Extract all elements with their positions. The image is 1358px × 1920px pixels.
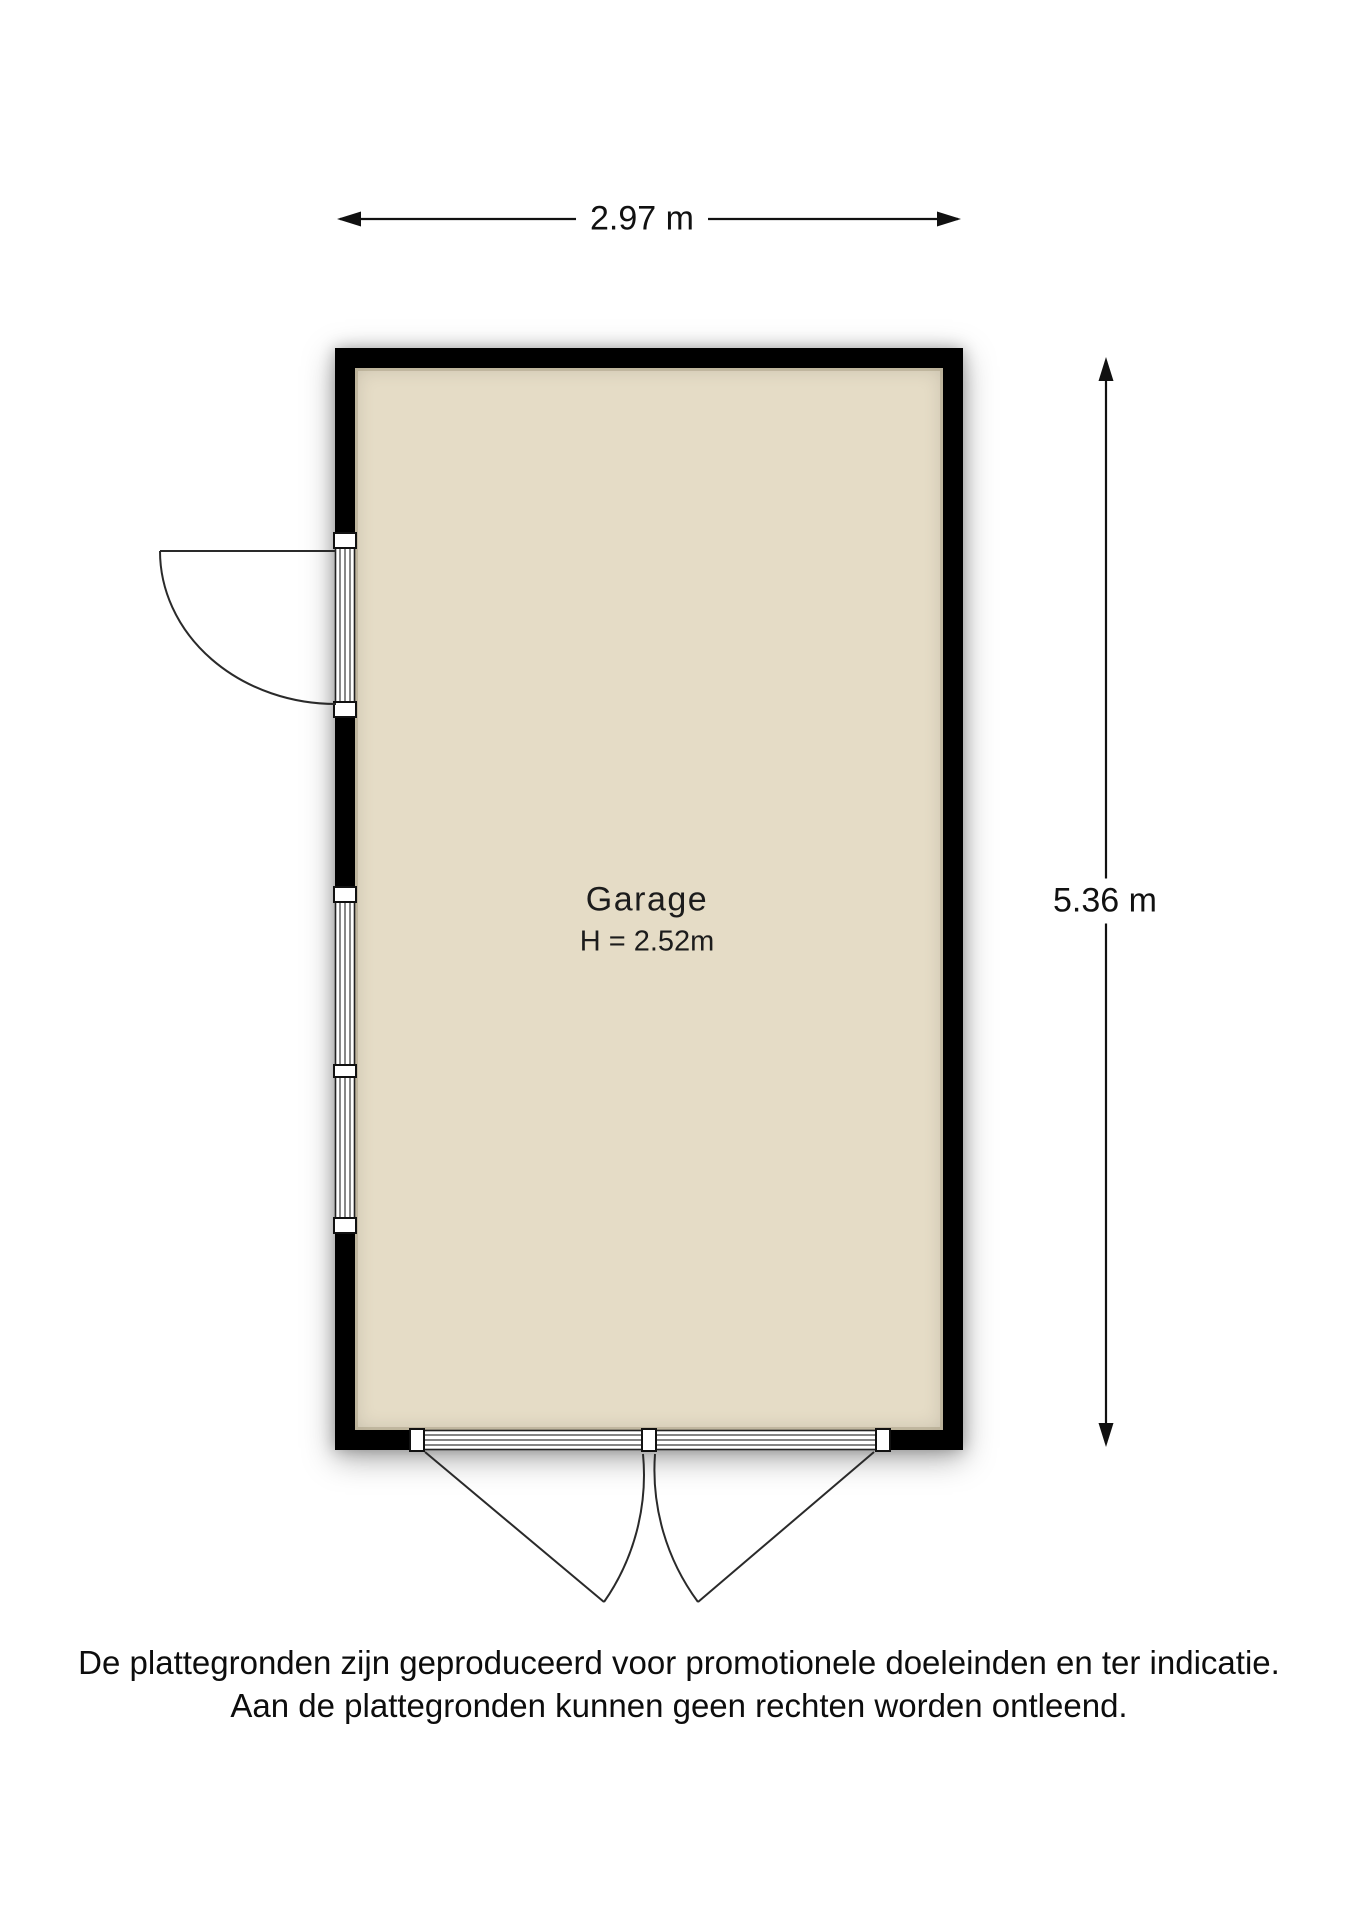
garage-door-swing-arc-left (604, 1454, 644, 1602)
disclaimer-text: De plattegronden zijn geproduceerd voor … (0, 1641, 1358, 1727)
garage-door-leaf-left (425, 1452, 604, 1602)
entry-door (160, 533, 356, 717)
floorplan-drawing (0, 0, 1358, 1920)
height-dimension-label: 5.36 m (1039, 879, 1171, 924)
wall-left-segment-2 (335, 717, 355, 887)
garage-door-swing-arc-right (654, 1454, 698, 1602)
width-dimension-label: 2.97 m (576, 197, 708, 242)
floorplan-page: 2.97 m 5.36 m Garage H = 2.52m De platte… (0, 0, 1358, 1920)
dimension-arrow-up-icon (1099, 357, 1114, 381)
window-mullion (334, 1065, 356, 1077)
disclaimer-line-2: Aan de plattegronden kunnen geen rechten… (0, 1684, 1358, 1727)
wall-left-segment-1 (335, 368, 355, 533)
garage-jamb-right (876, 1429, 890, 1451)
wall-bottom-right (890, 1430, 963, 1450)
wall-top (335, 348, 963, 368)
room-height-label: H = 2.52m (580, 926, 715, 959)
disclaimer-line-1: De plattegronden zijn geproduceerd voor … (0, 1641, 1358, 1684)
wall-bottom-left (335, 1430, 411, 1450)
door-swing-arc (160, 551, 336, 704)
door-jamb-top (334, 533, 356, 548)
window-jamb-bottom (334, 1218, 356, 1233)
dimension-arrow-down-icon (1099, 1423, 1114, 1447)
garage-door-leaf-right (698, 1452, 874, 1602)
left-window (334, 887, 356, 1233)
dimension-arrow-left-icon (337, 212, 361, 227)
garage-door (410, 1429, 890, 1602)
wall-left-segment-3 (335, 1233, 355, 1450)
window-jamb-top (334, 887, 356, 902)
garage-jamb-left (410, 1429, 424, 1451)
garage-jamb-center (642, 1429, 656, 1451)
wall-right (943, 368, 963, 1450)
door-jamb-bottom (334, 702, 356, 717)
room-name-label: Garage (586, 881, 708, 920)
dimension-arrow-right-icon (937, 212, 961, 227)
